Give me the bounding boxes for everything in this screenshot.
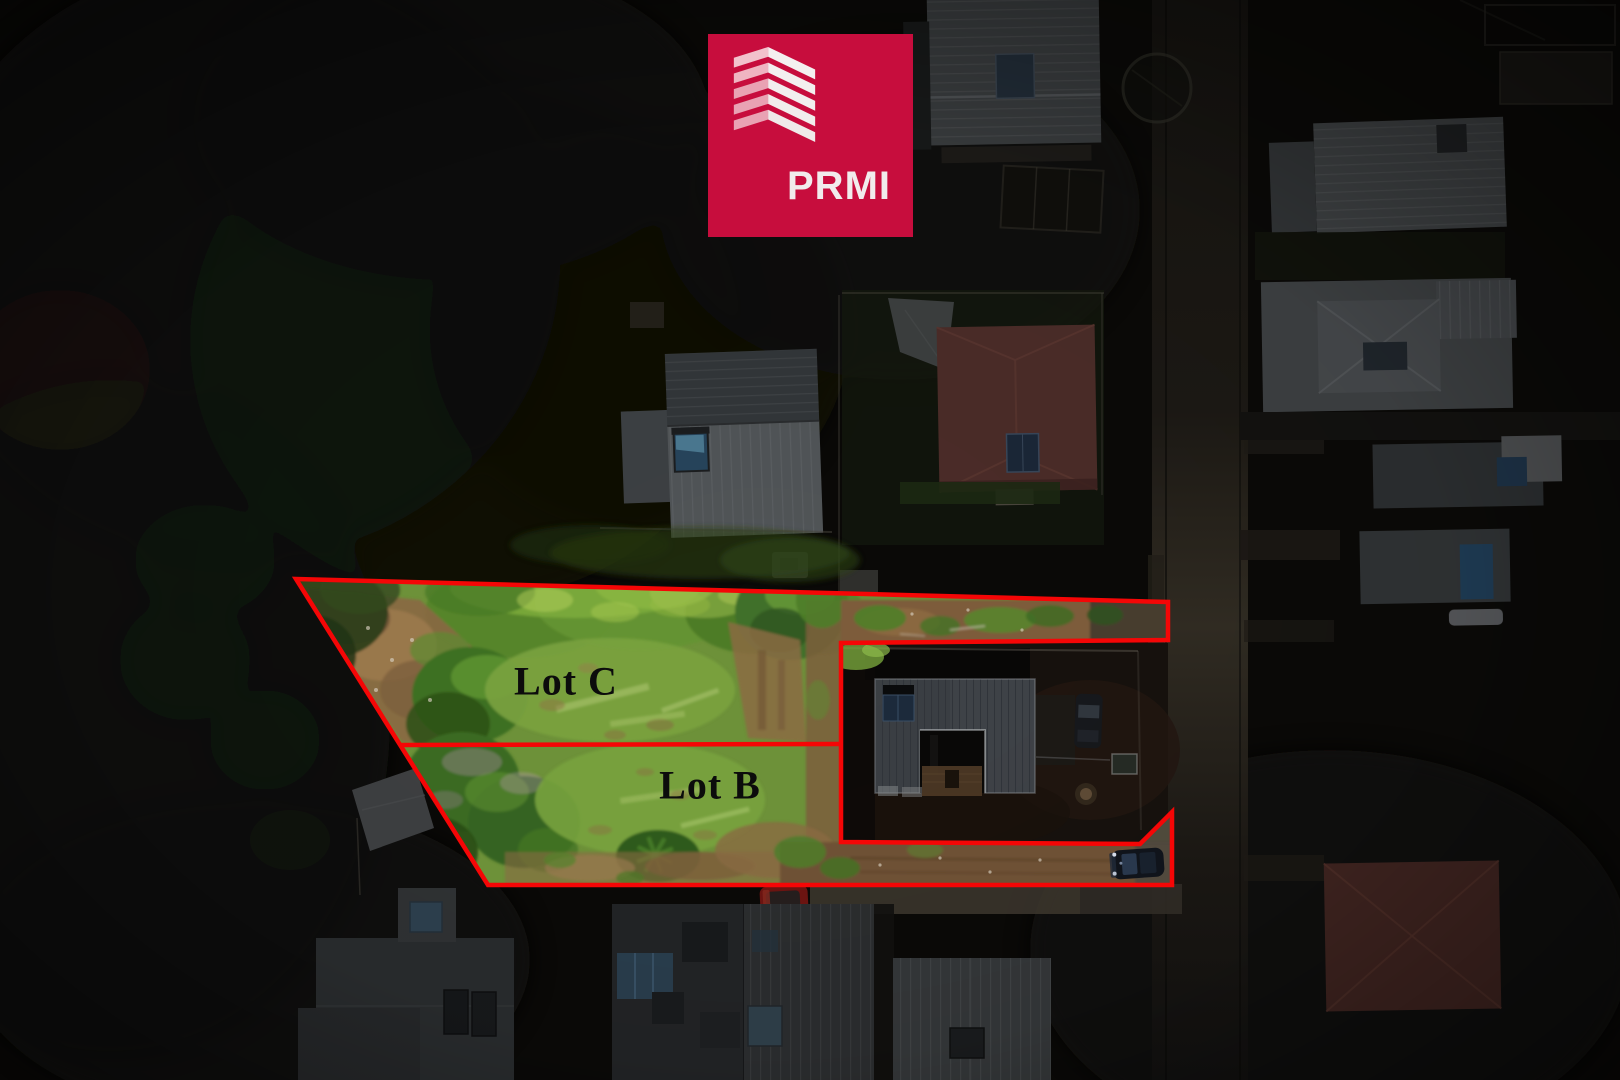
prmi-logo: PRMI [708, 34, 913, 237]
lot-label-b: Lot B [659, 762, 761, 809]
lot-divider-line [399, 744, 841, 745]
aerial-photo: Lot C Lot B PRMI [0, 0, 1620, 1080]
stacked-building-floors-icon [733, 47, 816, 145]
lot-outline [296, 579, 1172, 885]
logo-wordmark: PRMI [786, 165, 892, 207]
lot-label-c: Lot C [514, 658, 618, 705]
